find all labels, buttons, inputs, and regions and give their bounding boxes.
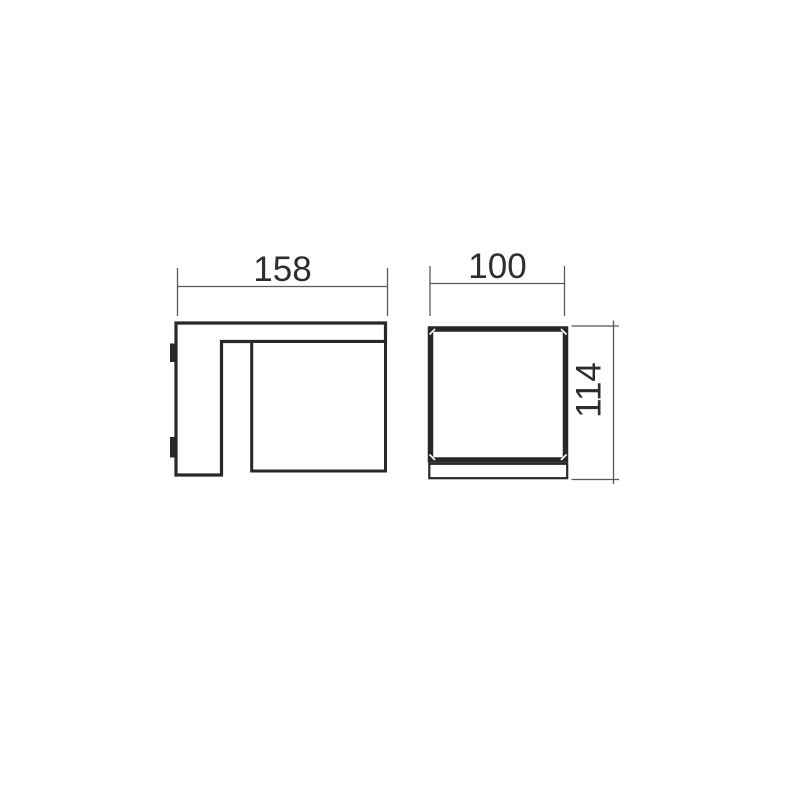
dim-label-front-height: 114 [570, 362, 609, 418]
drawing-canvas: 158 100 [0, 0, 800, 800]
front-view: 100 114 [429, 247, 619, 484]
dim-side-width: 158 [178, 250, 388, 316]
dim-label-front-width: 100 [468, 247, 526, 286]
lamp-body-side [252, 342, 386, 472]
dimension-drawing-svg: 158 100 [0, 0, 800, 800]
mounting-tab-top [170, 344, 176, 363]
dim-front-width: 100 [430, 247, 565, 316]
lamp-body-front [431, 329, 566, 460]
mounting-tab-bottom [170, 437, 176, 458]
dim-label-side-width: 158 [253, 250, 311, 289]
bottom-plate [429, 464, 567, 478]
side-view: 158 [170, 250, 388, 475]
dim-front-height: 114 [570, 321, 620, 485]
